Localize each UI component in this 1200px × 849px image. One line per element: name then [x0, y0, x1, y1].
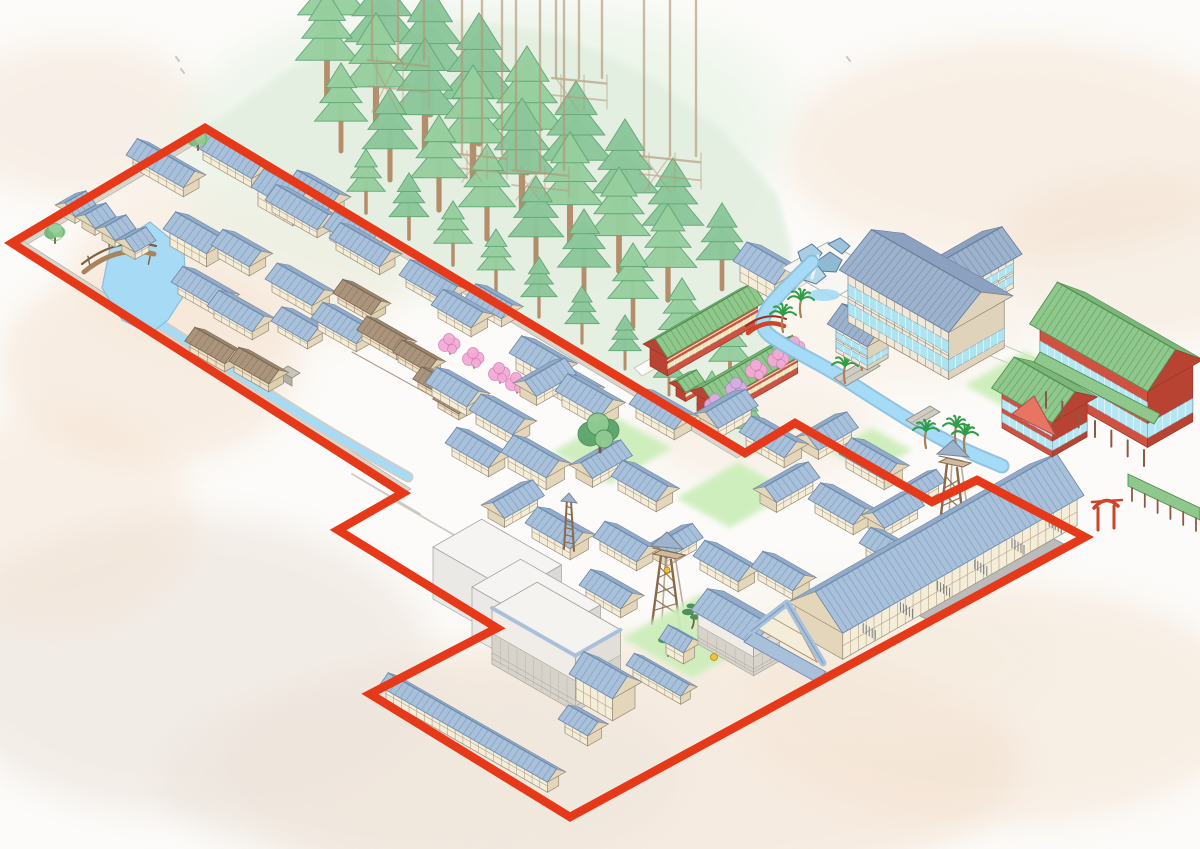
park-map-canvas: [0, 0, 1200, 849]
illustrated-park-map: [0, 0, 1200, 849]
